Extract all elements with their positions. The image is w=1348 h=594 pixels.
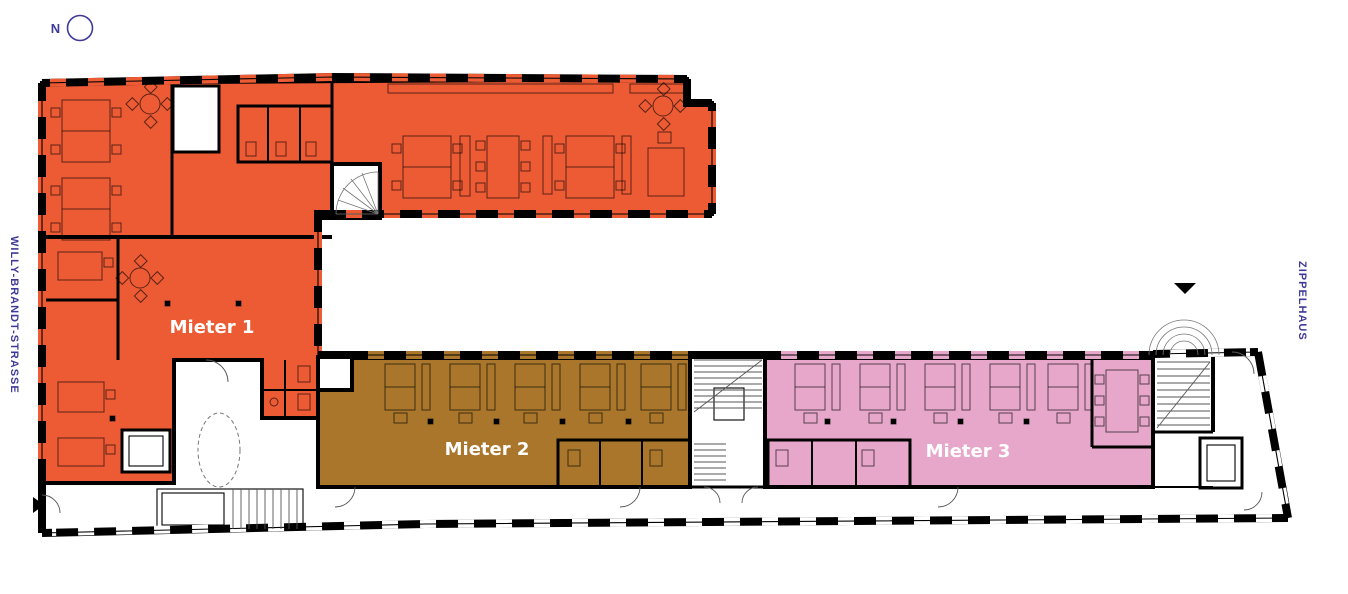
mieter-1-label: Mieter 1 [170, 317, 255, 338]
floor-opening [198, 413, 240, 487]
mieter-3-label: Mieter 3 [926, 441, 1011, 462]
floor-plan: N Mieter 1 Mieter 2 Mieter 3 [0, 0, 1348, 594]
spiral-stair-icon [336, 172, 378, 214]
entrance-stair-icon [233, 489, 297, 529]
storage-room [173, 86, 219, 152]
mieter-2-label: Mieter 2 [445, 439, 530, 460]
entrance-marker-top-right [1174, 283, 1196, 294]
floorplan-page: WILLY-BRANDT-STRASSE ZIPPELHAUS [0, 0, 1348, 594]
north-label: N [51, 21, 61, 36]
right-stair-icon [1157, 362, 1210, 428]
compass-circle [68, 16, 93, 41]
north-indicator: N [51, 16, 93, 41]
mieter-2-area[interactable] [318, 358, 690, 487]
